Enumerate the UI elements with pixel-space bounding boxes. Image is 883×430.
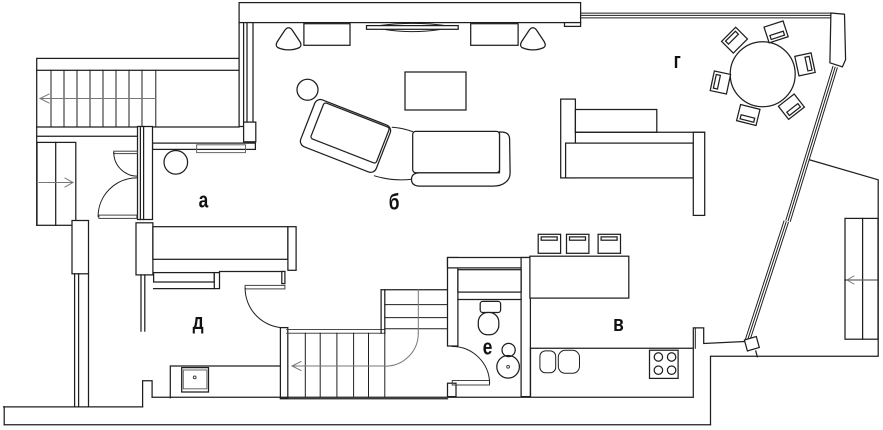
svg-text:д: д [193,310,204,335]
svg-text:б: б [389,191,400,216]
svg-text:г: г [674,49,681,74]
svg-text:а: а [199,188,209,213]
svg-text:е: е [483,336,493,361]
svg-text:в: в [613,312,624,337]
